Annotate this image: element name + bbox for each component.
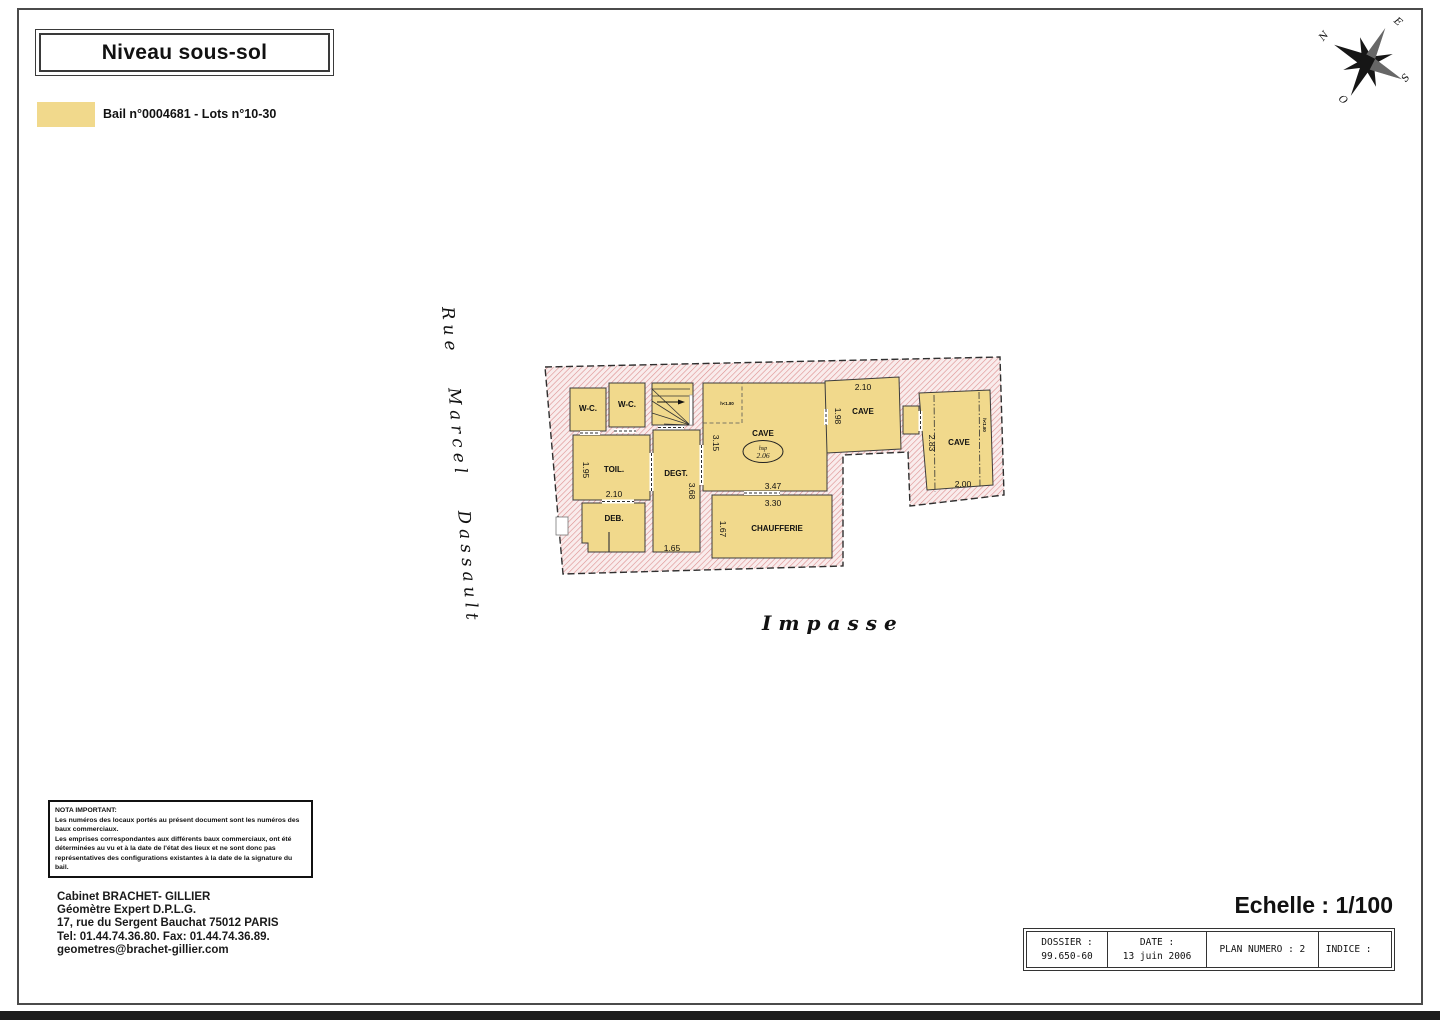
left-edge-opening — [556, 517, 568, 535]
taskbar-strip — [0, 1011, 1440, 1020]
compass-rose-icon: N E S O — [1308, 2, 1433, 127]
dim-cave-opening: 3.47 — [765, 481, 782, 491]
compass-east-label: E — [1391, 15, 1405, 29]
date-value: 13 juin 2006 — [1123, 950, 1192, 964]
room-label-chaufferie: CHAUFFERIE — [751, 524, 803, 533]
room-label-cave-far-right: CAVE — [948, 438, 970, 447]
room-label-degt: DEGT. — [664, 469, 688, 478]
compass-north-label: N — [1316, 29, 1331, 44]
firm-name: Cabinet BRACHET- GILLIER — [57, 891, 279, 904]
titleblock-date-cell: DATE : 13 juin 2006 — [1108, 932, 1207, 967]
plan-number-label: PLAN NUMERO : 2 — [1219, 943, 1305, 957]
compass-south-label: S — [1400, 72, 1413, 84]
firm-email: geometres@brachet-gillier.com — [57, 944, 279, 957]
street-label-impasse: Impasse — [762, 611, 904, 635]
firm-phone-fax: Tel: 01.44.74.36.80. Fax: 01.44.74.36.89… — [57, 931, 279, 944]
room-label-toil: TOIL. — [604, 465, 624, 474]
nota-line: baux commerciaux. — [55, 825, 306, 835]
room-label-cave-right: CAVE — [852, 407, 874, 416]
plan-title-box: Niveau sous-sol — [35, 29, 334, 76]
height-note-cave-center: h<1.80 — [720, 401, 734, 406]
passage-connector-shape — [903, 406, 919, 434]
hsp-value: 2.06 — [756, 451, 769, 460]
dim-cave-far-height: 2.83 — [927, 435, 937, 452]
nota-line: Les emprises correspondantes aux différe… — [55, 835, 306, 845]
nota-title: NOTA IMPORTANT: — [55, 806, 306, 816]
dim-toil-height: 1.95 — [581, 462, 591, 479]
date-label: DATE : — [1140, 936, 1174, 950]
dossier-label: DOSSIER : — [1041, 936, 1092, 950]
legend-swatch — [37, 102, 95, 127]
room-label-wc2: W-C. — [618, 400, 636, 409]
legend-label: Bail n°0004681 - Lots n°10-30 — [103, 107, 276, 121]
titleblock-dossier-cell: DOSSIER : 99.650-60 — [1027, 932, 1108, 967]
dim-toil-width: 2.10 — [606, 489, 623, 499]
surveyor-firm-block: Cabinet BRACHET- GILLIER Géomètre Expert… — [57, 891, 279, 957]
dim-degt-width: 1.65 — [664, 543, 681, 553]
indice-label: INDICE : — [1326, 943, 1372, 957]
dim-cave-far-width: 2.00 — [955, 479, 972, 489]
dossier-value: 99.650-60 — [1041, 950, 1092, 964]
dim-chaufferie-opening: 3.30 — [765, 498, 782, 508]
floor-plan: hsp 2.06 W-C. W-C. TOIL. DEB. DEGT. CAVE… — [530, 345, 1030, 590]
titleblock-indice-cell: INDICE : — [1319, 932, 1391, 967]
dim-cave-left-height: 3.15 — [711, 435, 721, 452]
titleblock-plan-number-cell: PLAN NUMERO : 2 — [1207, 932, 1319, 967]
height-note-cave-far-right: h<1.80 — [982, 418, 987, 432]
dim-cave-right-width: 2.10 — [855, 382, 872, 392]
room-label-wc1: W-C. — [579, 404, 597, 413]
compass-star-short — [1335, 29, 1401, 95]
firm-title: Géomètre Expert D.P.L.G. — [57, 904, 279, 917]
nota-line: déterminées au vu et à la date de l'état… — [55, 844, 306, 854]
stairs-door-slot — [690, 395, 693, 425]
room-label-cave-center: CAVE — [752, 429, 774, 438]
nota-line: représentatives des configurations exist… — [55, 854, 306, 873]
room-deb-shape — [582, 503, 645, 552]
dim-cave-right-height: 1.98 — [833, 408, 843, 425]
room-label-deb: DEB. — [604, 514, 623, 523]
nota-important-box: NOTA IMPORTANT: Les numéros des locaux p… — [48, 800, 313, 878]
dim-chaufferie-height: 1.67 — [718, 521, 728, 538]
compass-west-label: O — [1336, 93, 1349, 107]
page-title: Niveau sous-sol — [102, 41, 268, 65]
title-block: DOSSIER : 99.650-60 DATE : 13 juin 2006 … — [1023, 928, 1395, 971]
firm-address: 17, rue du Sergent Bauchat 75012 PARIS — [57, 917, 279, 930]
dim-degt-height: 3.68 — [687, 483, 697, 500]
nota-line: Les numéros des locaux portés au présent… — [55, 816, 306, 826]
scale-label: Echelle : 1/100 — [1093, 892, 1393, 919]
